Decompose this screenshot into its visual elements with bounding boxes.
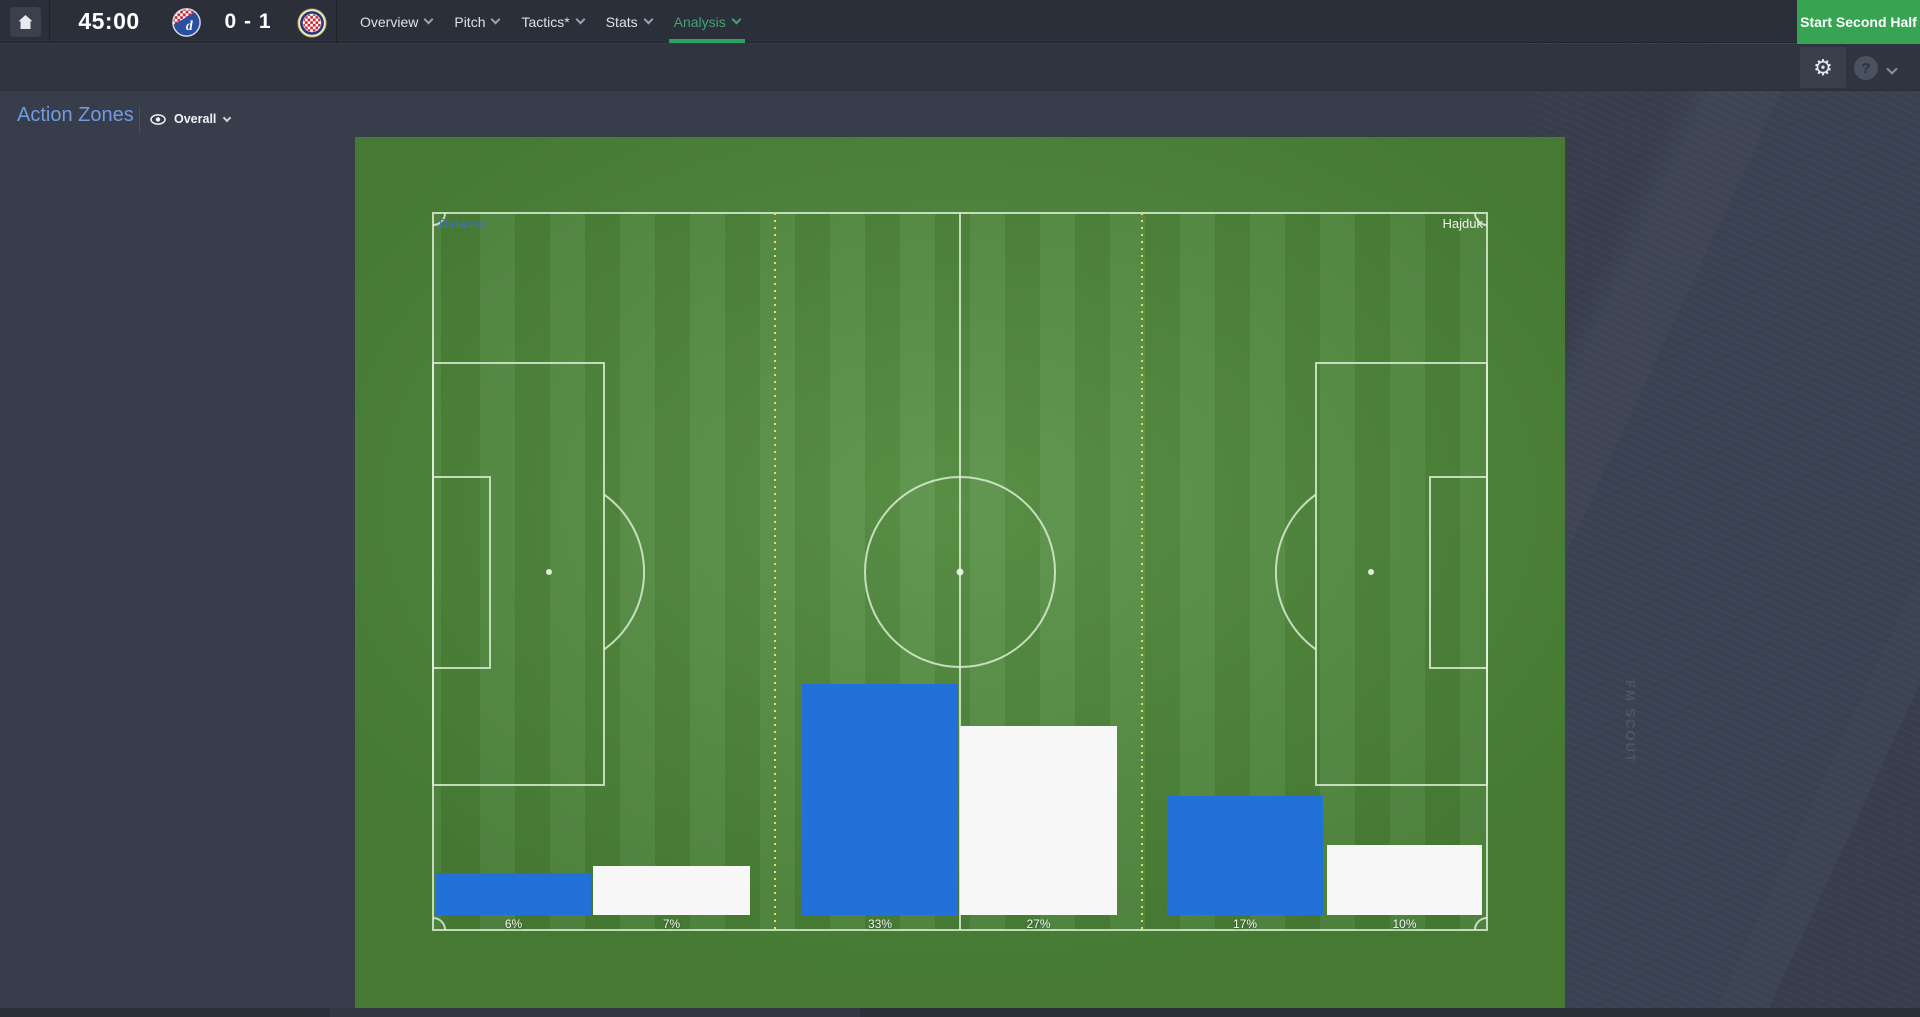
zone-percentage: 6% — [436, 916, 591, 932]
start-second-half-button[interactable]: Start Second Half — [1797, 0, 1920, 44]
secondary-toolbar: ⚙ ? — [0, 44, 1920, 91]
chevron-down-icon — [1886, 63, 1897, 74]
zone-bar-home — [1167, 796, 1323, 915]
zone-percentage: 33% — [802, 916, 958, 932]
eye-icon — [150, 114, 166, 125]
match-analysis-screen: FM SCOUT 45:00 d 0 - 1 — [0, 0, 1920, 1017]
match-clock: 45:00 — [66, 0, 152, 43]
tab-label: Analysis — [674, 14, 726, 30]
chevron-down-icon — [643, 15, 653, 25]
tab-label: Stats — [606, 14, 638, 30]
settings-button[interactable]: ⚙ — [1800, 47, 1846, 88]
zone-bar-home — [802, 684, 958, 915]
away-team-pitch-label: Hajduk — [1443, 216, 1483, 231]
zone-bar-away — [593, 866, 750, 915]
view-filter-dropdown[interactable]: Overall — [150, 108, 230, 130]
zone-bar-home — [436, 873, 591, 915]
gear-icon: ⚙ — [1813, 57, 1833, 79]
fm-scout-watermark: FM SCOUT — [1623, 680, 1638, 696]
chevron-down-icon — [491, 15, 501, 25]
home-team-logo: d — [172, 8, 201, 37]
chevron-down-icon — [731, 15, 741, 25]
home-button[interactable] — [10, 7, 41, 37]
penalty-spot-right — [1368, 569, 1374, 575]
chevron-down-icon — [223, 114, 231, 122]
tab-label: Overview — [360, 14, 418, 30]
home-icon — [17, 14, 34, 30]
header-divider — [139, 106, 140, 132]
page-title: Action Zones — [17, 104, 134, 127]
tab-tactics[interactable]: Tactics* — [516, 0, 588, 43]
collapse-toolbar-button[interactable] — [1888, 60, 1896, 78]
zone-bar-away — [960, 726, 1117, 915]
chevron-down-icon — [424, 15, 434, 25]
zone-bar-away — [1327, 845, 1482, 915]
zone-percentage: 7% — [593, 916, 750, 932]
help-button[interactable]: ? — [1854, 56, 1878, 80]
tab-label: Pitch — [454, 14, 485, 30]
tab-stats[interactable]: Stats — [601, 0, 657, 43]
tab-analysis[interactable]: Analysis — [669, 0, 745, 43]
zone-percentage: 17% — [1167, 916, 1323, 932]
topbar-divider — [336, 0, 337, 43]
zone-percentage: 10% — [1327, 916, 1482, 932]
tab-overview[interactable]: Overview — [355, 0, 437, 43]
action-zones-pitch: Dinamo Hajduk 6% 7% 33% 27% 17% 10% — [355, 137, 1565, 1008]
match-score: 0 - 1 — [216, 0, 280, 43]
home-team-pitch-label: Dinamo — [439, 216, 484, 231]
view-filter-label: Overall — [174, 112, 216, 126]
away-team-logo — [297, 8, 327, 38]
help-icon: ? — [1861, 60, 1870, 77]
zone-percentage: 27% — [960, 916, 1117, 932]
bottom-edge-strip — [0, 1008, 1920, 1017]
stadium-background-image — [1530, 0, 1920, 1017]
match-tab-bar: Overview Pitch Tactics* Stats Analysis — [355, 0, 745, 43]
svg-text:d: d — [186, 18, 193, 33]
tab-pitch[interactable]: Pitch — [449, 0, 504, 43]
topbar-divider — [49, 0, 50, 43]
chevron-down-icon — [575, 15, 585, 25]
centre-spot — [957, 569, 964, 576]
match-top-bar: 45:00 d 0 - 1 — [0, 0, 1920, 43]
tab-label: Tactics* — [521, 14, 569, 30]
penalty-spot-left — [546, 569, 552, 575]
